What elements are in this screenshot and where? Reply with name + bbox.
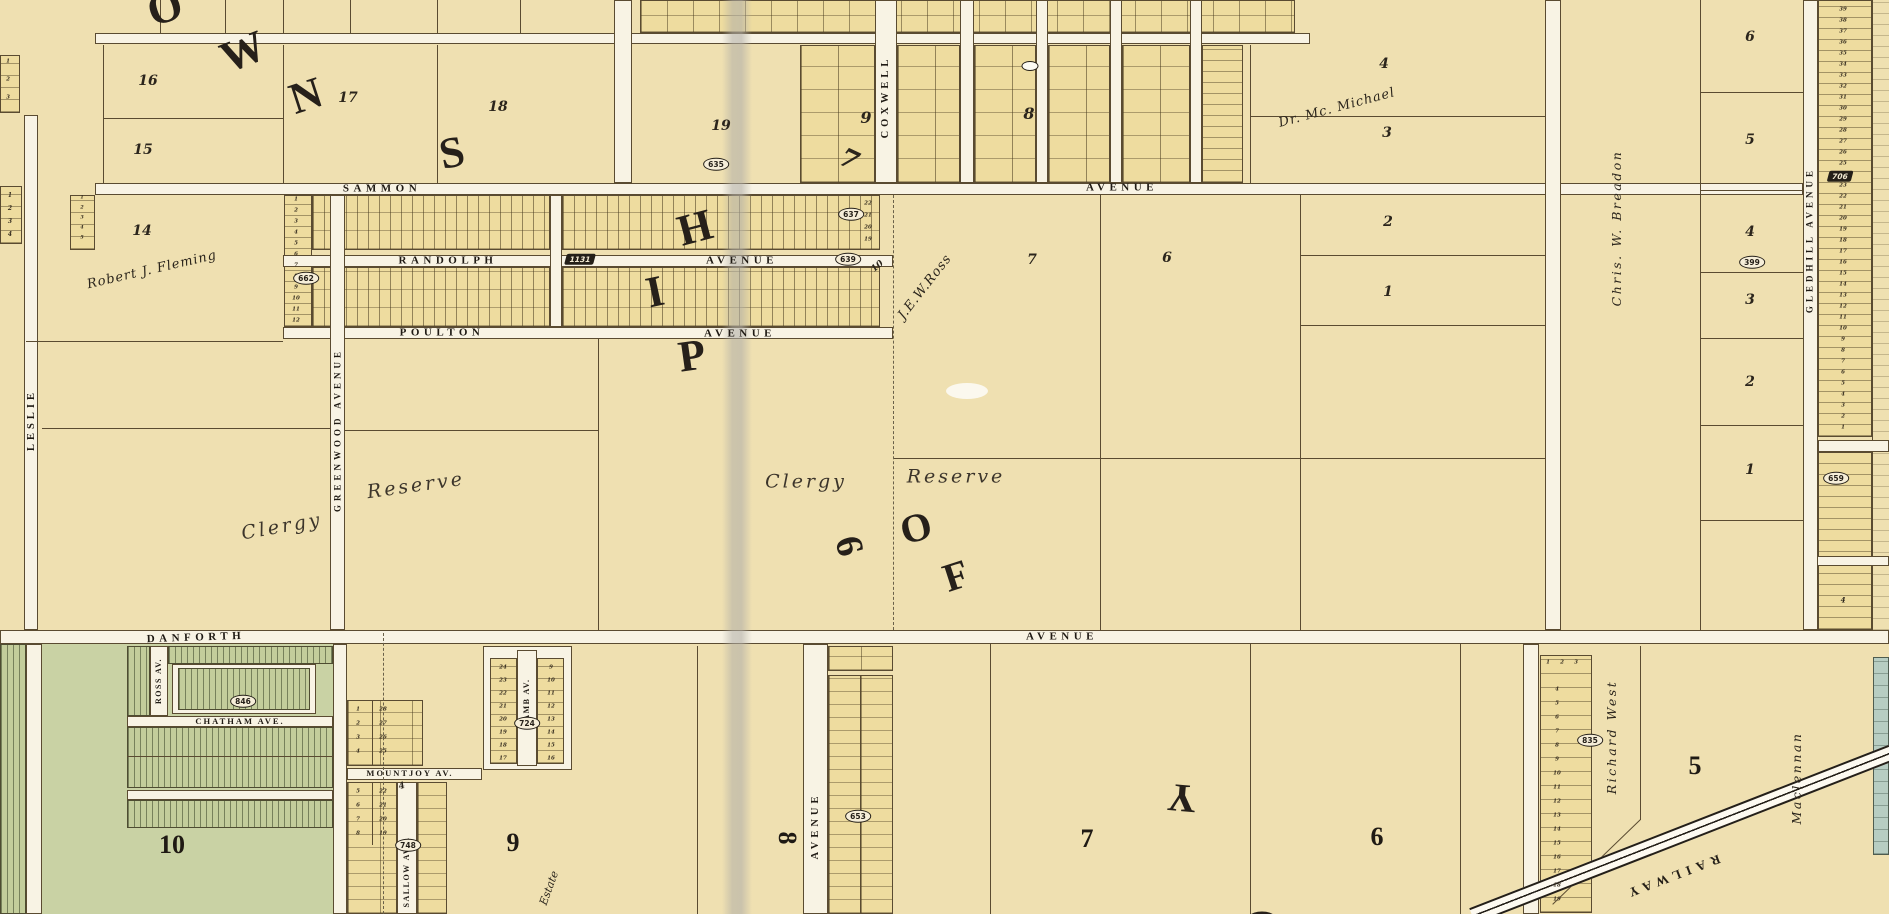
leslie-street-south-road <box>26 644 42 914</box>
sallow-east-block <box>417 782 447 914</box>
township-letter-s: S <box>435 129 468 177</box>
east-col-line-2 <box>1700 190 1803 191</box>
far-left-col-lot-2: 2 <box>8 206 12 212</box>
poulton-street-label: POULTON <box>400 328 485 339</box>
gledhill-east-col-lot-38: 38 <box>1839 18 1847 24</box>
east-concession-road <box>1545 0 1561 630</box>
gledhill-east-col-lot-13: 13 <box>1839 293 1847 299</box>
lamb-west-col-lot-18: 18 <box>499 743 507 749</box>
plan-badge-846: 846 <box>230 695 256 708</box>
top-row-line-5 <box>437 0 438 33</box>
owner-chris-w-breadon: Chris. W. Breadon <box>1611 150 1624 307</box>
greenwood-west-col-lot-9: 9 <box>294 285 298 291</box>
lot-15-label: 15 <box>133 143 152 157</box>
lamb-west-col-lot-24: 24 <box>499 665 507 671</box>
leslie-street-label: LESLIE <box>27 389 38 451</box>
coxwell-south-top-block <box>828 646 893 671</box>
lot-7-label: 7 <box>1027 253 1037 267</box>
gledhill-east-col-lot-22: 22 <box>1839 194 1847 200</box>
south-line-1460 <box>1460 644 1461 914</box>
lot16-west-line <box>103 45 104 183</box>
richard-west-col-lot-15: 15 <box>1553 841 1561 847</box>
township-letter-o: O <box>142 0 188 34</box>
gledhill-east-col-lot-10: 10 <box>1839 326 1847 332</box>
top-row-line-6 <box>520 0 521 33</box>
sammon-east-col-lot-22: 22 <box>864 201 872 207</box>
richard-west-col-lot-17: 17 <box>1553 869 1561 875</box>
mountjoy-se-col-lot-21: 21 <box>379 803 387 809</box>
ross-boundary-dashed-line <box>893 195 894 630</box>
coxwell-south-avenue-label: AVENUE <box>811 793 822 860</box>
greenwood-west-col-lot-1: 1 <box>294 197 298 203</box>
gledhill-east-col-lot-34: 34 <box>1839 62 1847 68</box>
cross-road-1036 <box>1036 0 1048 183</box>
gledhill-small-4: 4 <box>1841 597 1846 604</box>
lot-1-label: 1 <box>1383 285 1393 299</box>
richard-west-col-lot-12: 12 <box>1553 799 1561 805</box>
east-lot-3-label: 3 <box>1745 293 1755 307</box>
mountjoy-ne-col-lot-28: 28 <box>379 707 387 713</box>
gledhill-cross-lane-1 <box>1818 440 1889 452</box>
cross-road-1110 <box>1110 0 1122 183</box>
gledhill-east-col-lot-28: 28 <box>1839 128 1847 134</box>
mcmichael-west-line <box>1250 45 1251 183</box>
gledhill-east-col-lot-32: 32 <box>1839 84 1847 90</box>
green-strip-far-left <box>0 644 26 914</box>
far-left-upper-col-lot-1: 1 <box>6 59 10 65</box>
owner-robert-j-fleming: Robert J. Fleming <box>86 249 218 292</box>
east-lot-6-label: 6 <box>1745 30 1755 44</box>
sammon-street-label: SAMMON <box>343 184 421 195</box>
east-lot-1-label: 1 <box>1745 463 1755 477</box>
cross-road-1190 <box>1190 0 1202 183</box>
richard-west-col-lot-13: 13 <box>1553 813 1561 819</box>
lamb-west-col-lot-23: 23 <box>499 678 507 684</box>
far-left-col-lot-4: 4 <box>8 232 12 238</box>
mountjoy-ne-col-lot-26: 26 <box>379 735 387 741</box>
lamb-west-col-lot-19: 19 <box>499 730 507 736</box>
coxwell-east-block <box>897 45 960 183</box>
concession-6-numeral: 6 <box>828 532 870 560</box>
plan-badge-706: 706 <box>1827 171 1853 182</box>
lot-18-label: 18 <box>488 100 507 114</box>
plan-badge-659: 659 <box>1823 472 1849 485</box>
richard-west-col-lot-6: 6 <box>1555 715 1559 721</box>
sammon-east-col-lot-21: 21 <box>864 213 872 219</box>
south-line-697 <box>697 646 698 914</box>
township-letter-n: N <box>284 70 328 122</box>
richard-west-col-lot-4: 4 <box>1555 687 1559 693</box>
gledhill-east-col-lot-3: 3 <box>1841 403 1845 409</box>
lot-16-label: 16 <box>138 74 157 88</box>
sammon-randolph-east-grid <box>562 195 880 250</box>
mountjoy-nw-col-lot-2: 2 <box>356 721 360 727</box>
sammon-east-col-lot-19: 19 <box>864 237 872 243</box>
paper-damage-patch <box>946 383 988 399</box>
lot2-top-line <box>1300 255 1545 256</box>
lot-3-label: 3 <box>1382 126 1392 140</box>
gledhill-east-col-lot-16: 16 <box>1839 260 1847 266</box>
mountjoy-ne-col-lot-27: 27 <box>379 721 387 727</box>
gledhill-east-col-lot-5: 5 <box>1841 381 1845 387</box>
randolph-poulton-west-grid <box>312 267 550 327</box>
lot-2-label: 2 <box>1383 215 1393 229</box>
leslie-east-col-lot-1: 1 <box>80 196 83 201</box>
gledhill-east-col-lot-15: 15 <box>1839 271 1847 277</box>
gledhill-east-col-lot-12: 12 <box>1839 304 1847 310</box>
clergy-mid-v-line <box>598 339 599 630</box>
lot-6-label: 6 <box>1162 251 1172 265</box>
greenwood-west-col-lot-12: 12 <box>292 318 300 324</box>
mountjoy-sw-col-lot-6: 6 <box>356 803 360 809</box>
york-letter-o: O <box>1242 904 1282 914</box>
plan-badge-635: 635 <box>703 158 729 171</box>
south-lot-9-label: 9 <box>507 830 520 856</box>
mountjoy-nw-col-lot-3: 3 <box>356 735 360 741</box>
gledhill-east-col-lot-7: 7 <box>1841 359 1845 365</box>
mid-east-line-458 <box>893 458 1545 459</box>
greenwood-west-col-lot-11: 11 <box>292 307 300 313</box>
gledhill-east-col-lot-37: 37 <box>1839 29 1847 35</box>
sammon-randolph-west-grid <box>312 195 550 250</box>
lamb-east-col-lot-12: 12 <box>547 704 555 710</box>
owner-dr-mcmichael: Dr. Mc. Michael <box>1277 86 1396 130</box>
fleming-south-line <box>26 341 283 342</box>
mountjoy-se-col-lot-19: 19 <box>379 831 387 837</box>
south-line-1250 <box>1250 644 1251 914</box>
leslie-east-lots <box>70 195 95 250</box>
gledhill-east-col-lot-23: 23 <box>1839 183 1847 189</box>
poulton-avenue-road <box>283 327 893 339</box>
far-left-upper-col-lot-2: 2 <box>6 77 10 83</box>
gledhill-east-col-lot-2: 2 <box>1841 414 1845 420</box>
greenwood-west-col-lot-3: 3 <box>294 219 298 225</box>
lot-4-label: 4 <box>1379 57 1389 71</box>
gledhill-east-col-lot-27: 27 <box>1839 139 1847 145</box>
lamb-west-col-lot-17: 17 <box>499 756 507 762</box>
randolph-street-label: RANDOLPH <box>399 256 498 267</box>
coxwell-street-label: COXWELL <box>881 56 892 139</box>
east-lot-5-label: 5 <box>1745 133 1755 147</box>
gledhill-east-col-lot-14: 14 <box>1839 282 1847 288</box>
lamb-east-col-lot-13: 13 <box>547 717 555 723</box>
greenwood-west-col-lot-2: 2 <box>294 208 298 214</box>
sammon-east-col-lot-20: 20 <box>864 225 872 231</box>
coxwell-south-mid-line <box>860 675 861 914</box>
lamb-east-col-lot-10: 10 <box>547 678 555 684</box>
randolph-avenue-label: AVENUE <box>706 256 778 267</box>
block-grid-1122 <box>1122 45 1190 183</box>
south-lot-7-label: 7 <box>1081 826 1094 852</box>
clergy-mid-h-line <box>345 430 598 431</box>
top-row-line-4 <box>350 0 351 33</box>
lot-17-label: 17 <box>338 91 357 105</box>
richard-west-col-lot-11: 11 <box>1553 785 1561 791</box>
right-edge-sliver <box>1872 0 1889 630</box>
mountjoy-nw-col-lot-1: 1 <box>356 707 360 713</box>
poulton-avenue-label: AVENUE <box>704 329 776 340</box>
sammon-avenue-label: AVENUE <box>1086 183 1158 194</box>
gledhill-east-col-lot-29: 29 <box>1839 117 1847 123</box>
green-mid-block <box>127 727 333 788</box>
plan-badge-399: 399 <box>1739 256 1765 269</box>
greenwood-west-col-lot-4: 4 <box>294 230 298 236</box>
lamb-east-col-lot-16: 16 <box>547 756 555 762</box>
leslie-street-road <box>24 115 38 630</box>
gledhill-east-col-lot-8: 8 <box>1841 348 1845 354</box>
mountjoy-nw-col-lot-4: 4 <box>356 749 360 755</box>
of-letter-o: O <box>896 505 936 552</box>
gledhill-east-col-lot-20: 20 <box>1839 216 1847 222</box>
block-9-label: 9 <box>860 110 871 126</box>
gledhill-east-col-lot-36: 36 <box>1839 40 1847 46</box>
clergy-reserve-west-1: Clergy <box>240 511 324 544</box>
green-south-block <box>127 800 333 828</box>
lamb-east-col-lot-9: 9 <box>549 665 553 671</box>
far-left-upper-col-lot-3: 3 <box>6 95 10 101</box>
danforth-avenue-road <box>0 630 1889 644</box>
cross-road-960 <box>960 0 974 183</box>
east-col-line-6 <box>1700 520 1803 521</box>
green-lower-lane <box>127 790 333 800</box>
of-letter-f: F <box>938 553 974 599</box>
richard-west-east-line <box>1640 646 1641 820</box>
top-concession-road <box>95 33 1310 44</box>
lot1-top-line <box>1300 325 1545 326</box>
east-concession-road-south <box>1523 644 1539 914</box>
greenwood-west-col-lot-5: 5 <box>294 241 298 247</box>
lamb-west-col-lot-21: 21 <box>499 704 507 710</box>
lot6-east-line <box>1300 195 1301 630</box>
lot-19-label: 19 <box>711 119 730 133</box>
gledhill-east-col-lot-30: 30 <box>1839 106 1847 112</box>
lot17-west-line <box>283 45 284 183</box>
far-left-col-lot-1: 1 <box>8 193 12 199</box>
mountjoy-sw-col-lot-8: 8 <box>356 831 360 837</box>
gledhill-east-col-lot-31: 31 <box>1839 95 1847 101</box>
far-left-col-lot-3: 3 <box>8 219 12 225</box>
danforth-avenue-label: AVENUE <box>1026 632 1098 643</box>
east-col-line-3 <box>1700 272 1803 273</box>
richard-west-col-lot-18: 18 <box>1553 883 1561 889</box>
gledhill-east-col-lot-4: 4 <box>1841 392 1845 398</box>
owner-richard-west: Richard West <box>1606 680 1619 795</box>
richard-west-col-lot-7: 7 <box>1555 729 1559 735</box>
south-lot-6-label: 6 <box>1371 824 1384 850</box>
east-col-line-5 <box>1700 425 1803 426</box>
south-line-990 <box>990 644 991 914</box>
greenwood-west-col-lot-7: 7 <box>294 263 298 269</box>
clergy-west-line <box>42 428 330 429</box>
east-lot-4-label: 4 <box>1745 225 1755 239</box>
owner-jew-ross: J.E.W.Ross <box>896 252 954 322</box>
empty-oval-badge <box>1022 61 1039 71</box>
richard-west-col-lot-14: 14 <box>1553 827 1561 833</box>
clergy-reserve-mid-2: Reserve <box>907 468 1006 487</box>
block-grid-1048 <box>1048 45 1110 183</box>
gledhill-avenue-label: GLEDHILL AVENUE <box>1806 167 1815 313</box>
richard-west-top-row-lot-2: 2 <box>1560 660 1564 666</box>
green-mid-row-line <box>127 756 333 757</box>
gledhill-east-col-lot-35: 35 <box>1839 51 1847 57</box>
mountjoy-ne-col-lot-25: 25 <box>379 749 387 755</box>
gledhill-east-col-lot-6: 6 <box>1841 370 1845 376</box>
gledhill-east-col-lot-9: 9 <box>1841 337 1845 343</box>
east-lot-2-label: 2 <box>1745 375 1755 389</box>
gledhill-east-col-lot-1: 1 <box>1841 425 1845 431</box>
plan-badge-637: 637 <box>838 208 864 221</box>
plan-badge-662: 662 <box>293 272 319 285</box>
east-col-line-1 <box>1700 92 1803 93</box>
mountjoy-se-col-lot-22: 22 <box>379 789 387 795</box>
lamb-east-col-lot-15: 15 <box>547 743 555 749</box>
top-row-line-3 <box>283 0 284 33</box>
west-of-lot19-road <box>614 0 632 183</box>
richard-west-top-row-lot-1: 1 <box>1546 660 1550 666</box>
far-left-upper-lots <box>0 55 20 113</box>
richard-west-top-row-lot-3: 3 <box>1574 660 1578 666</box>
owner-maclennan: Maclennan <box>1791 732 1804 825</box>
greenwood-avenue-label: GREENWOOD AVENUE <box>334 348 343 512</box>
block-8-label: 8 <box>1023 106 1034 122</box>
east-col-line-4 <box>1700 338 1803 339</box>
lamb-east-col-lot-11: 11 <box>547 691 555 697</box>
gledhill-avenue-road <box>1803 0 1818 630</box>
richard-west-col-lot-9: 9 <box>1555 757 1559 763</box>
mountjoy-south-mid-line <box>372 782 373 845</box>
gledhill-east-col-lot-17: 17 <box>1839 249 1847 255</box>
top-row-line-2 <box>225 0 226 33</box>
green-west-col <box>127 646 150 716</box>
lamb-west-col-lot-22: 22 <box>499 691 507 697</box>
gledhill-east-col-lot-18: 18 <box>1839 238 1847 244</box>
richard-west-col-lot-5: 5 <box>1555 701 1559 707</box>
lot16-lot15-line <box>103 118 283 119</box>
gledhill-east-col-lot-26: 26 <box>1839 150 1847 156</box>
gledhill-east-col-lot-11: 11 <box>1839 315 1847 321</box>
breadon-east-line <box>1700 0 1701 630</box>
mid-cross-street <box>550 195 562 327</box>
south-lot-8-label: 8 <box>774 832 800 845</box>
leslie-east-col-lot-2: 2 <box>80 206 83 211</box>
leslie-east-col-lot-4: 4 <box>80 226 83 231</box>
plan-badge-835: 835 <box>1577 734 1603 747</box>
mountjoy-av-label: MOUNTJOY AV. <box>366 769 453 778</box>
york-letter-y: Y <box>1166 777 1198 819</box>
narrow-col-1202 <box>1202 45 1243 183</box>
greenwood-west-col-lot-10: 10 <box>292 296 300 302</box>
richard-west-col-lot-16: 16 <box>1553 855 1561 861</box>
richard-west-col-lot-19: 19 <box>1553 897 1561 903</box>
greenwood-west-col-lot-6: 6 <box>294 252 298 258</box>
mountjoy-north-mid-line <box>372 700 373 766</box>
greenwood-avenue-south-road <box>333 644 347 914</box>
mountjoy-sw-col-lot-7: 7 <box>356 817 360 823</box>
south-lot-10-label: 10 <box>159 832 185 858</box>
ross-av-label: ROSS AV. <box>155 658 163 704</box>
lamb-east-col-lot-14: 14 <box>547 730 555 736</box>
clergy-reserve-mid-1: Clergy <box>765 473 847 492</box>
map-canvas[interactable]: SAMMONAVENUERANDOLPHAVENUEPOULTONAVENUED… <box>0 0 1889 914</box>
leslie-east-col-lot-5: 5 <box>80 236 83 241</box>
richard-west-col-lot-8: 8 <box>1555 743 1559 749</box>
gledhill-east-col-lot-25: 25 <box>1839 161 1847 167</box>
owner-estate: Estate <box>538 869 561 906</box>
plan-badge-1131: 1131 <box>564 254 596 265</box>
plan-badge-653: 653 <box>845 810 871 823</box>
gledhill-east-col-lot-39: 39 <box>1839 7 1847 13</box>
plan-badge-639: 639 <box>835 253 861 266</box>
chatham-ave-label: CHATHAM AVE. <box>195 717 284 726</box>
township-letter-w: W <box>214 23 271 80</box>
south-lot-5-label: 5 <box>1689 753 1702 779</box>
coxwell-avenue-south-road <box>803 644 828 914</box>
green-north-strip <box>168 646 333 664</box>
gledhill-east-col-lot-21: 21 <box>1839 205 1847 211</box>
leslie-east-col-lot-3: 3 <box>80 216 83 221</box>
map-fold-crease <box>722 0 752 914</box>
clergy-reserve-west-2: Reserve <box>366 470 466 503</box>
randolph-poulton-east-grid <box>562 267 880 327</box>
lot-14-label: 14 <box>132 224 151 238</box>
mountjoy-se-col-lot-20: 20 <box>379 817 387 823</box>
lamb-west-col-lot-20: 20 <box>499 717 507 723</box>
lot18-west-line <box>437 45 438 183</box>
plan-badge-724: 724 <box>514 717 540 730</box>
gledhill-east-col-lot-19: 19 <box>1839 227 1847 233</box>
gledhill-east-col-lot-33: 33 <box>1839 73 1847 79</box>
mountjoy-sw-col-lot-5: 5 <box>356 789 360 795</box>
richard-west-col-lot-10: 10 <box>1553 771 1561 777</box>
plan-badge-748: 748 <box>395 839 421 852</box>
lot7-lot6-line <box>1100 195 1101 630</box>
